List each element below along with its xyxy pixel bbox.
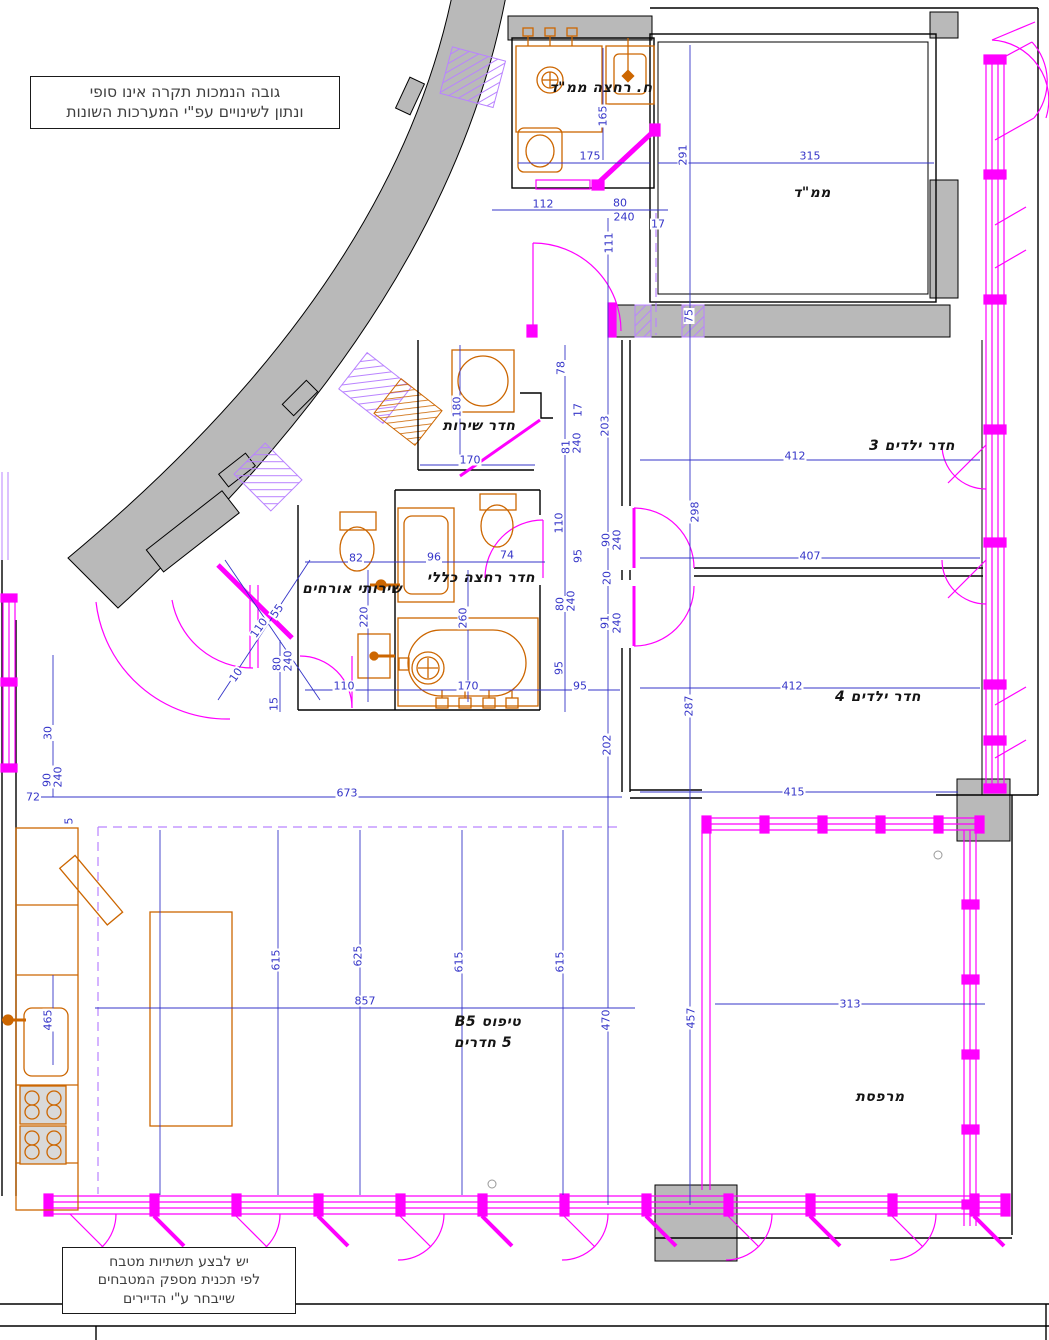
cooktop-icon <box>20 1086 66 1164</box>
dimension-lines <box>25 45 985 1205</box>
ceiling-note: גובה הנמכות תקרה אינו סופיונתון לשינויים… <box>30 76 340 129</box>
floorplan-canvas: 1651752913151128024017111757817180203812… <box>0 0 1049 1340</box>
note-line: שייבחר ע"י הדיירים <box>73 1290 285 1308</box>
note-line: יש לבצע תשתיות מטבח <box>73 1253 285 1271</box>
kitchen-units <box>2 828 232 1210</box>
note-line: ונתון לשינויים עפ"י המערכות השונות <box>41 102 329 122</box>
note-line: לפי תכנית מספק המטבחים <box>73 1271 285 1289</box>
kitchen-note: יש לבצע תשתיות מטבחלפי תכנית מספק המטבחי… <box>62 1247 296 1314</box>
note-line: גובה הנמכות תקרה אינו סופי <box>41 82 329 102</box>
windows-and-doors <box>1 22 1049 1260</box>
tub-valve-icons <box>436 690 518 708</box>
sanitary-fixtures <box>2 28 654 1210</box>
floorplan-drawing <box>0 0 1049 1340</box>
